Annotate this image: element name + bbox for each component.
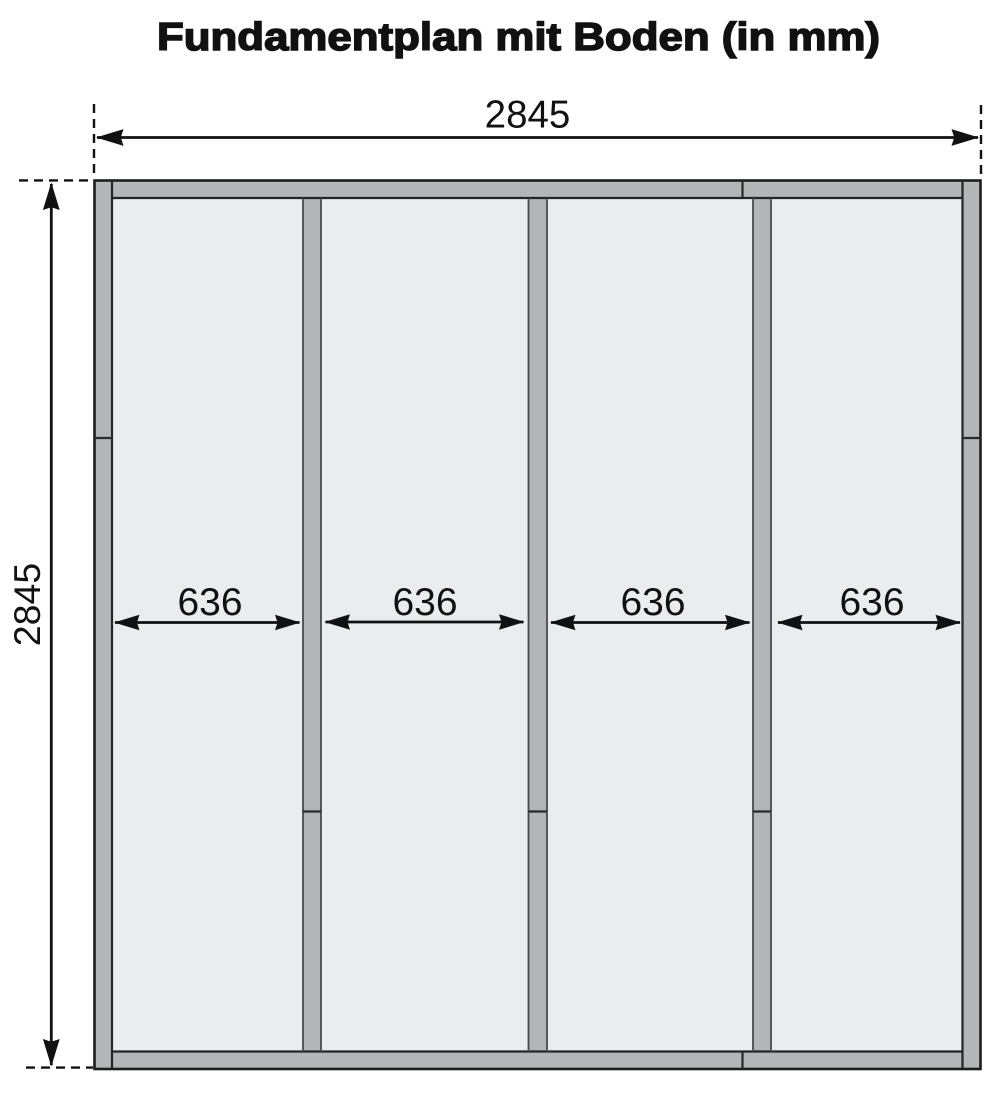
- svg-text:2845: 2845: [485, 94, 571, 137]
- svg-text:636: 636: [177, 581, 242, 624]
- svg-text:Fundamentplan mit Boden (in mm: Fundamentplan mit Boden (in mm): [157, 16, 880, 59]
- svg-text:636: 636: [620, 581, 685, 624]
- svg-text:2845: 2845: [6, 563, 48, 646]
- svg-text:636: 636: [392, 581, 457, 624]
- svg-text:636: 636: [839, 581, 904, 624]
